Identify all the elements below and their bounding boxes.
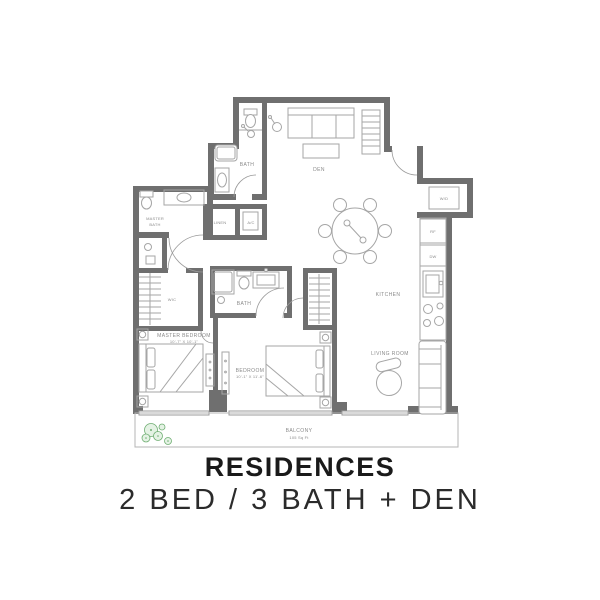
toilet-middle [237,271,251,289]
title-block: RESIDENCES 2 BED / 3 BATH + DEN [0,452,600,517]
door-arcs [168,150,417,343]
master-bed [139,344,203,392]
kitchen-label: KITCHEN [376,292,401,298]
wic-hangers [139,273,161,325]
bedroom-dims: 10'-1" X 11'-6" [236,374,264,379]
vanity-upper [215,168,229,192]
floor-lamp-icon [269,116,282,132]
bath-upper-label: BATH [240,162,255,168]
coffee-table [303,144,339,158]
den-sofa [288,108,354,138]
kitchen-sink [423,271,443,297]
balcony-label: BALCONY [286,428,313,434]
toilet-master [140,191,153,209]
wd-label: W/D [440,196,448,201]
master-bath-label-2: BATH [149,222,160,227]
dw-label: DW [429,254,436,259]
floorplan-page: BATH DEN W/D RF DW KITCHEN LINEN A/C MAS… [0,0,600,600]
linen-label: LINEN [214,220,227,225]
plant-icon [142,424,172,445]
bedroom2-bed [266,346,330,396]
ac-label: A/C [247,220,254,225]
balcony-area-label: 105 Sq Ft [289,435,309,440]
bedroom2-dresser [222,352,229,394]
bathtub [215,145,237,161]
den-shelf [362,110,380,154]
rf-label: RF [430,229,436,234]
bath-middle-label: BATH [237,301,252,307]
vanity-middle [253,269,279,289]
plan-title: RESIDENCES [0,452,600,483]
fixtures [137,108,459,414]
plan-subtitle: 2 BED / 3 BATH + DEN [0,484,600,517]
toilet-upper [244,109,257,128]
dining-table [332,208,378,254]
closet-hangers [309,274,330,324]
room-labels: BATH DEN W/D RF DW KITCHEN LINEN A/C MAS… [146,162,448,440]
kitchen-counter [420,218,446,340]
vanity-master [164,190,204,205]
armchair [375,357,402,395]
living-sofa [419,341,446,414]
shower-middle [212,270,234,304]
stove-burners [424,303,444,327]
master-bath-label-1: MASTER [146,216,164,221]
wic-label: WIC [168,297,176,302]
den-label: DEN [313,167,325,173]
floorplan-drawing: BATH DEN W/D RF DW KITCHEN LINEN A/C MAS… [0,0,600,455]
master-shower [145,244,156,265]
master-bedroom-dims: 10'-7" X 10'-1" [170,339,199,344]
bedroom-bench [206,354,214,386]
living-room-label: LIVING ROOM [371,351,409,357]
